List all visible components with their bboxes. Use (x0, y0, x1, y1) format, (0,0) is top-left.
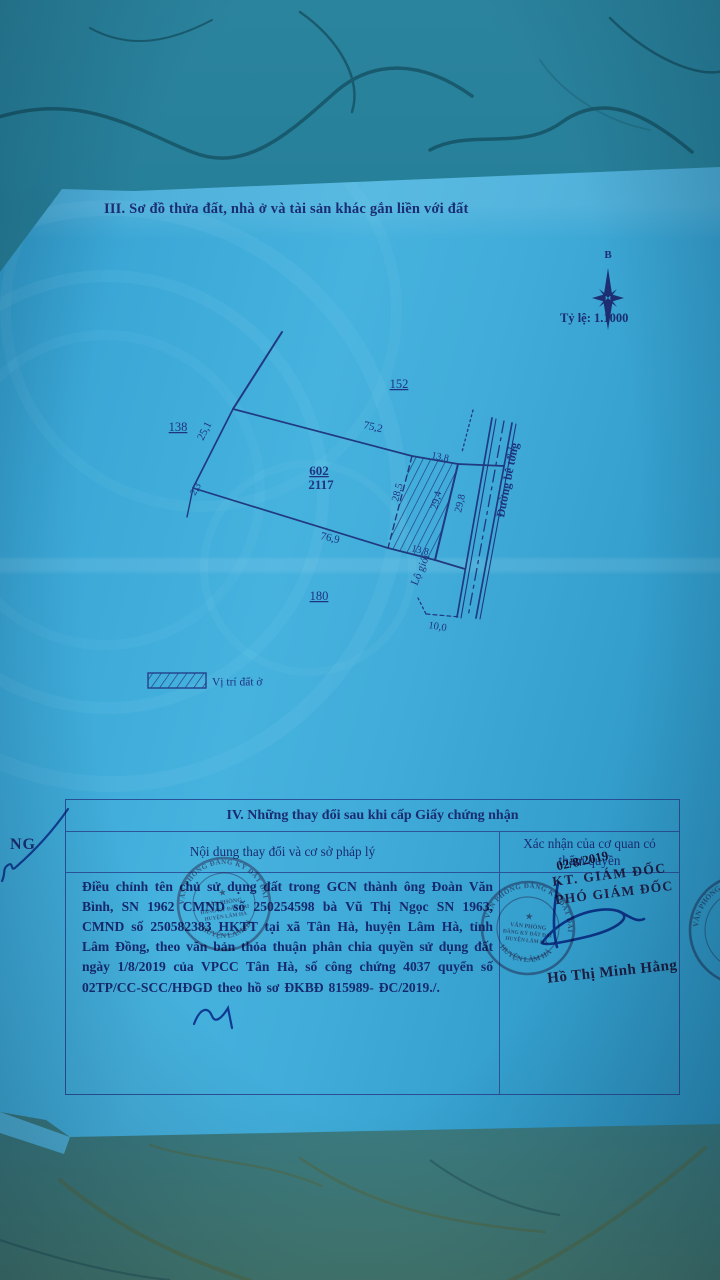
section4-title: IV. Những thay đổi sau khi cấp Giấy chứn… (227, 808, 519, 824)
body-cell-content: Điều chỉnh tên chủ sử dụng đất trong GCN… (66, 873, 500, 1094)
pen-stroke (0, 795, 90, 890)
parcel-area: 2117 (308, 477, 334, 492)
svg-text:★: ★ (218, 888, 227, 898)
header-cell-content: Nội dung thay đổi và cơ sở pháp lý (66, 832, 500, 872)
parcel-number: 602 (309, 463, 329, 478)
legend-hatch-swatch (148, 673, 206, 688)
dim-top: 75,2 (362, 419, 383, 435)
dim-road-width: 10,0 (427, 620, 447, 634)
change-entry-text: Điều chỉnh tên chủ sử dụng đất trong GCN… (66, 873, 499, 998)
legend: Vị trí đất ở (146, 670, 286, 694)
neighbor-parcel-bottom: 180 (310, 589, 329, 603)
map-scale-label: Tỷ lệ: 1.1000 (560, 311, 670, 326)
signature-stroke (530, 875, 660, 965)
photo-of-land-certificate: III. Sơ đồ thửa đất, nhà ở và tài sản kh… (0, 0, 720, 1280)
setback-label: Lộ giới (409, 553, 433, 588)
parcel-diagram: 75,2 25,1 2,3 76,9 13,8 28,5 29,4 29,8 1… (140, 320, 570, 660)
section4-title-row: IV. Những thay đổi sau khi cấp Giấy chứn… (66, 800, 679, 832)
neighbor-parcel-left: 138 (169, 420, 188, 434)
round-seal-left: VĂN PHÒNG ĐĂNG KÝ ĐẤT ĐAI HUYỆN LÂM HÀ ★… (168, 848, 281, 961)
certificate-page: III. Sơ đồ thửa đất, nhà ở và tài sản kh… (0, 0, 720, 1280)
legend-label: Vị trí đất ở (212, 676, 263, 689)
compass-north-label: B (604, 249, 612, 261)
paragraph-end-initial (188, 998, 248, 1034)
road-name-label: Đường bê tông (493, 441, 521, 518)
dim-frontage: 29,8 (453, 493, 468, 513)
dim-left: 25,1 (195, 420, 214, 443)
section3-title: III. Sơ đồ thửa đất, nhà ở và tài sản kh… (104, 201, 468, 218)
dim-left-ext: 2,3 (188, 481, 204, 497)
neighbor-parcel-top: 152 (390, 377, 409, 391)
round-seal-partial-right-edge: VĂN PHÒNG ĐĂNG KÝ ĐẤT ĐAI (686, 860, 720, 1000)
